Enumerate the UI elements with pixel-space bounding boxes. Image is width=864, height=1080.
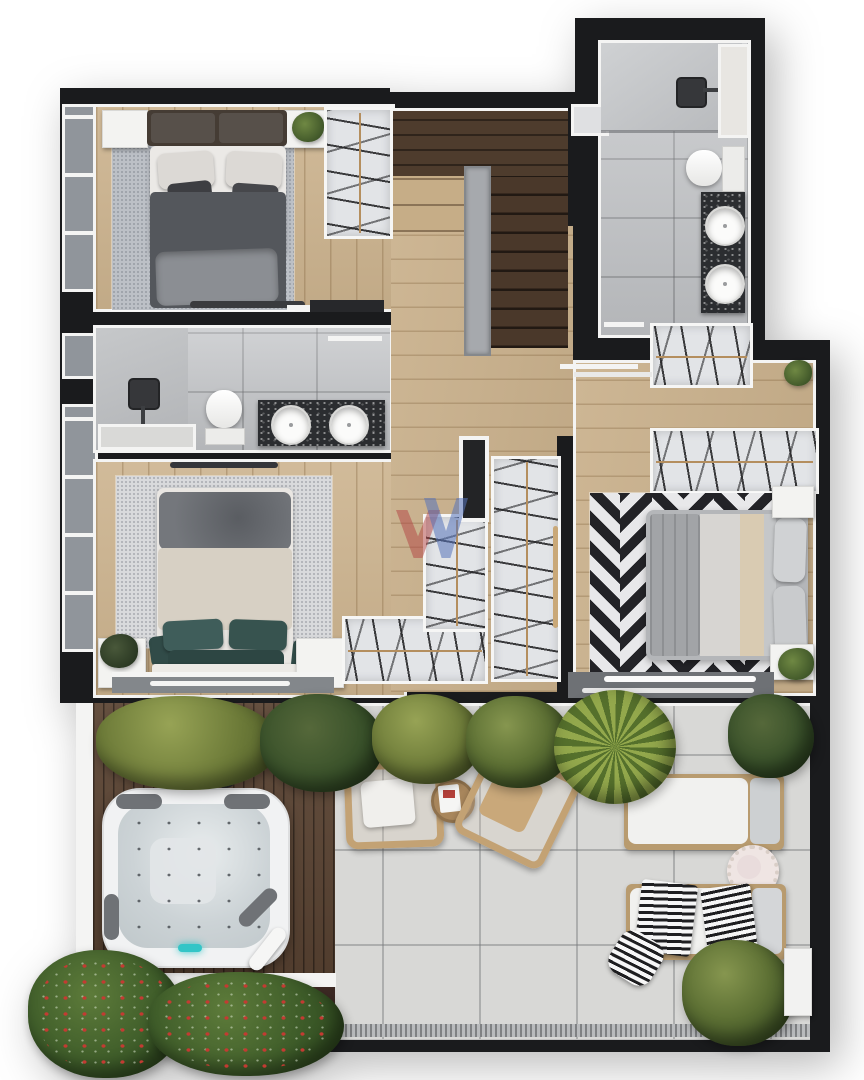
headboard-cushion <box>219 113 283 143</box>
potted-plant <box>100 634 138 668</box>
bed-beige-runner <box>740 514 764 656</box>
sink <box>329 405 369 445</box>
toilet-tank <box>205 428 245 445</box>
toilet-tank <box>722 146 745 192</box>
large-floor-plant <box>682 940 794 1046</box>
potted-plant <box>784 360 812 386</box>
wall-terrace-right <box>810 703 830 1052</box>
bed-blanket <box>650 514 700 656</box>
door-leaf-bathroom-1 <box>604 322 644 327</box>
pillow-teal <box>228 619 287 651</box>
potted-plant <box>292 112 324 142</box>
stair-railing <box>464 166 491 356</box>
hot-tub-led-light <box>178 944 202 952</box>
sliding-panel-handle <box>553 526 558 628</box>
stair-lower-flight <box>487 176 568 348</box>
sliding-door-handle <box>604 676 756 682</box>
potted-plant <box>778 648 814 680</box>
pocket-door-rail <box>560 364 638 369</box>
nightstand <box>102 110 148 148</box>
deck-edge-left <box>76 703 93 987</box>
headrest-pad <box>116 794 162 809</box>
shower-head-icon <box>676 77 707 108</box>
pillow <box>773 517 807 582</box>
mirror-strip <box>310 300 384 312</box>
planter-hedge <box>260 694 384 792</box>
corner-palm-plant <box>728 694 814 778</box>
sun-lounger-backrest <box>750 778 780 844</box>
window-bench <box>98 424 196 450</box>
floor-plan-screenshot <box>0 0 864 1080</box>
headrest-pad <box>224 794 270 809</box>
stair-upper-treads <box>391 176 465 232</box>
sink <box>705 264 745 304</box>
strawberry-planter <box>148 972 344 1076</box>
shower-arm <box>141 406 145 426</box>
bed-throw <box>155 248 279 306</box>
spiky-palm-plant <box>554 690 676 804</box>
side-table-top <box>737 855 761 879</box>
toilet-bowl <box>686 150 722 186</box>
toilet-bowl <box>206 390 242 428</box>
bed-duvet <box>700 514 740 656</box>
sliding-door-handle <box>150 681 290 686</box>
pocket-door-leaf <box>574 372 652 377</box>
bed-throw <box>159 492 291 550</box>
bed-duvet <box>158 548 292 630</box>
wardrobe-b <box>491 456 561 682</box>
headboard-cushion <box>151 113 215 143</box>
headrest-pad <box>104 894 119 940</box>
sink <box>271 405 311 445</box>
sink <box>705 206 745 246</box>
floor-plan <box>0 0 864 1080</box>
planter-hedge <box>96 696 280 790</box>
nightstand <box>772 486 814 518</box>
entry-wardrobe <box>650 323 753 388</box>
armchair-cushion <box>360 778 416 828</box>
planter-box <box>784 948 812 1016</box>
wardrobe-bedroom-1 <box>324 107 393 239</box>
wardrobe-bedroom-3 <box>650 428 819 494</box>
magazine-art <box>443 790 455 798</box>
door-leaf-bathroom-2 <box>328 336 382 341</box>
window-bathroom-1 <box>718 44 750 138</box>
pillow-teal <box>162 618 223 651</box>
wall-shelf <box>170 462 278 468</box>
magazine <box>438 784 462 813</box>
